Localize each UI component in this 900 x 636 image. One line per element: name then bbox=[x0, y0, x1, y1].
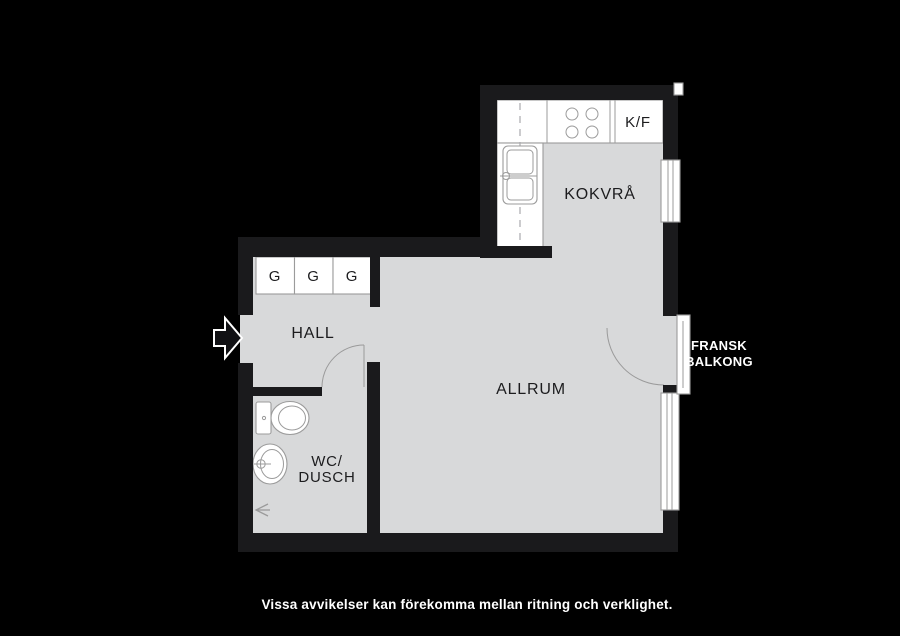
wardrobe-label: G bbox=[307, 268, 319, 285]
toilet-icon bbox=[256, 402, 309, 435]
washbasin-icon bbox=[253, 444, 287, 484]
room-label-kf: K/F bbox=[625, 114, 651, 131]
floorplan-page: G G G bbox=[0, 0, 900, 636]
sink-outline bbox=[503, 146, 537, 204]
wardrobe-label: G bbox=[346, 268, 358, 285]
balcony-door-threshold bbox=[663, 316, 678, 385]
room-label-wc-line2: DUSCH bbox=[298, 469, 355, 486]
room-label-wc-line1: WC/ bbox=[311, 453, 343, 470]
wall-counter-stub bbox=[480, 246, 552, 258]
wall-kitchen-left bbox=[480, 85, 497, 257]
floorplan-svg: G G G bbox=[0, 0, 900, 636]
wall-left-upper bbox=[238, 237, 253, 315]
toilet-cistern bbox=[256, 402, 271, 434]
wardrobe-label: G bbox=[269, 268, 281, 285]
room-label-kokvra: KOKVRÅ bbox=[564, 184, 636, 203]
wall-left-lower bbox=[238, 363, 253, 552]
wall-kitchen-top bbox=[480, 85, 678, 100]
wall-bottom bbox=[238, 533, 678, 552]
room-label-hall: HALL bbox=[291, 325, 334, 342]
corner-cap bbox=[674, 83, 683, 95]
kitchen-window bbox=[661, 160, 680, 222]
kitchen-sink bbox=[500, 146, 537, 204]
wall-wc-top bbox=[253, 387, 322, 396]
wall-right-3 bbox=[663, 510, 678, 552]
wall-right-2 bbox=[663, 222, 678, 316]
balcony-label-line1: FRANSK bbox=[691, 338, 747, 353]
wardrobes: G G G bbox=[256, 257, 372, 294]
allrum-window bbox=[661, 393, 679, 510]
wall-wc-right bbox=[367, 362, 380, 533]
balcony-label-line2: BALKONG bbox=[685, 354, 753, 369]
wall-hall-top bbox=[238, 237, 497, 257]
room-label-allrum: ALLRUM bbox=[496, 381, 566, 398]
wall-right-1 bbox=[663, 85, 678, 162]
wall-hall-divider bbox=[370, 257, 380, 307]
footer-disclaimer: Vissa avvikelser kan förekomma mellan ri… bbox=[261, 597, 672, 612]
